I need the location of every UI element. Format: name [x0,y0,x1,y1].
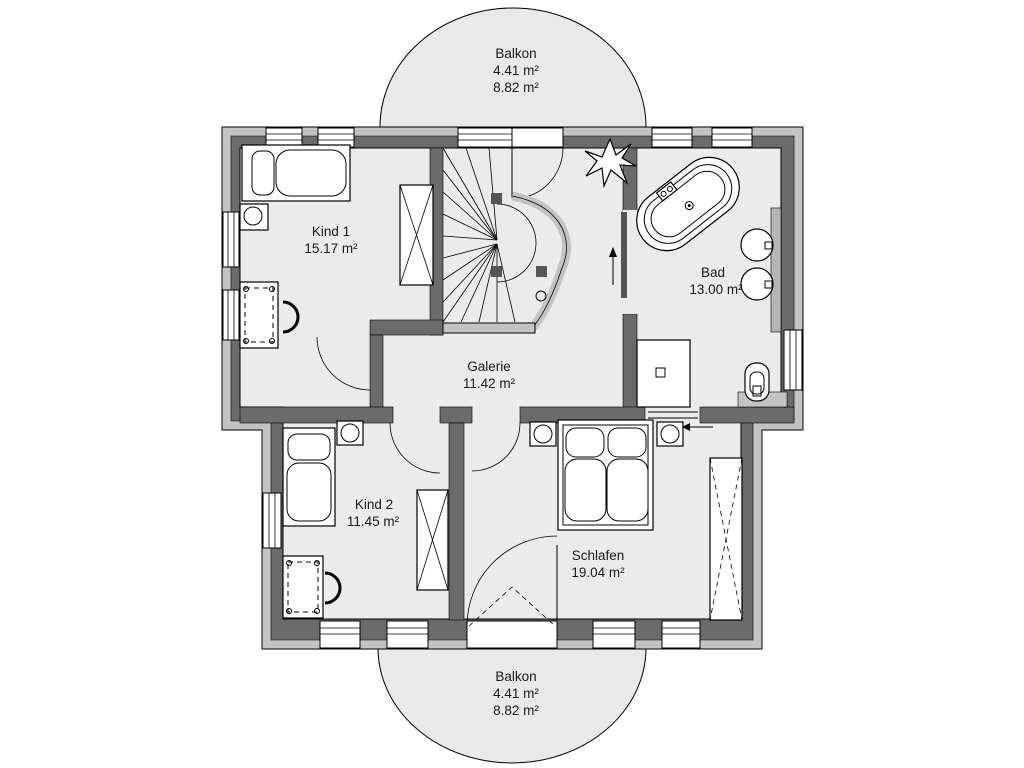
kind2-bed [283,428,335,526]
schlafen-nightstand-right [657,422,683,446]
floor-plan-drawing: Kind 1 15.17 m² Bad 13.00 m² Galerie 11.… [0,0,1024,768]
balkon-top-area1: 4.41 m² [493,63,539,78]
balkon-bottom-area1: 4.41 m² [493,686,539,701]
kind1-area: 15.17 m² [304,241,358,256]
bad-sliding-door [621,210,637,314]
kind1-wardrobe [400,185,433,285]
schlafen-wardrobe [710,458,742,620]
balkon-top-label: Balkon [495,46,536,61]
bad-area: 13.00 m² [689,282,743,297]
galerie-area: 11.42 m² [463,376,516,391]
kind2-wardrobe [417,490,448,590]
schlafen-label: Schlafen [572,548,625,563]
bad-label: Bad [701,265,725,280]
kind1-label: Kind 1 [312,224,350,239]
schlafen-area: 19.04 m² [571,565,625,580]
balkon-bottom-area2: 8.82 m² [493,703,539,718]
window-right-wall [784,330,802,390]
kind2-nightstand [337,421,363,445]
schlafen-nightstand-left [530,422,556,446]
schlafen-bed [558,420,653,530]
balkon-top-area2: 8.82 m² [493,80,539,95]
toilet [745,363,769,401]
kind1-bed [242,145,350,201]
balkon-bottom-label: Balkon [495,669,536,684]
kind2-label: Kind 2 [355,497,393,512]
kind1-nightstand [240,204,268,230]
shower [637,340,690,407]
floor-plan-canvas: Kind 1 15.17 m² Bad 13.00 m² Galerie 11.… [0,0,1024,768]
galerie-label: Galerie [467,359,511,374]
kind2-area: 11.45 m² [347,514,400,529]
windows-top-wall [266,128,752,147]
